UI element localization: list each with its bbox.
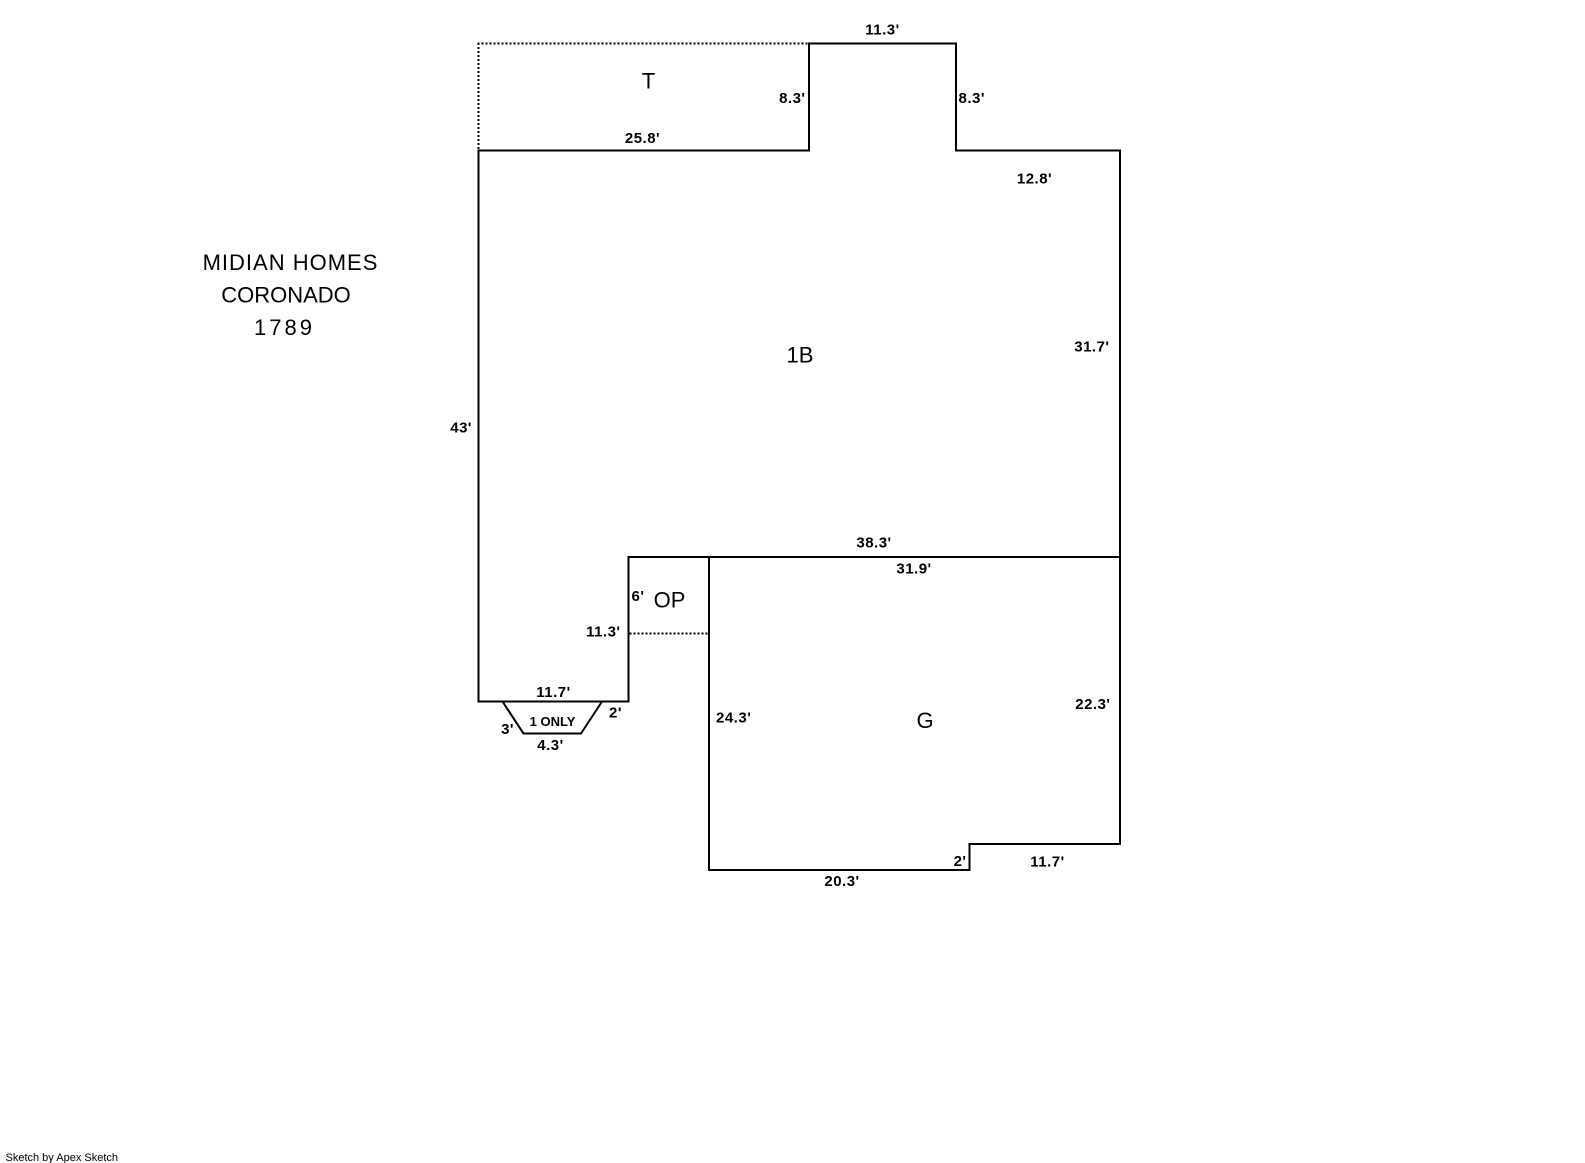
svg-text:3': 3': [501, 721, 514, 738]
svg-text:22.3': 22.3': [1075, 696, 1110, 713]
svg-text:6': 6': [632, 588, 645, 605]
svg-text:12.8': 12.8': [1017, 171, 1052, 188]
svg-text:38.3': 38.3': [856, 535, 891, 552]
svg-text:Sketch by Apex Sketch: Sketch by Apex Sketch: [6, 1152, 119, 1163]
svg-text:8.3': 8.3': [779, 90, 805, 107]
svg-text:1B: 1B: [787, 343, 814, 368]
svg-text:1 ONLY: 1 ONLY: [530, 714, 576, 729]
svg-text:31.9': 31.9': [896, 561, 931, 578]
svg-text:1789: 1789: [254, 315, 315, 340]
svg-text:20.3': 20.3': [824, 873, 859, 890]
svg-text:24.3': 24.3': [716, 710, 751, 727]
svg-text:MIDIAN HOMES: MIDIAN HOMES: [203, 250, 379, 275]
svg-text:11.3': 11.3': [865, 22, 899, 39]
svg-text:OP: OP: [654, 588, 686, 613]
svg-text:11.7': 11.7': [536, 684, 570, 701]
svg-text:8.3': 8.3': [959, 90, 985, 107]
svg-text:11.7': 11.7': [1030, 854, 1064, 871]
svg-text:11.3': 11.3': [586, 624, 620, 641]
svg-text:T: T: [642, 69, 655, 94]
svg-text:4.3': 4.3': [537, 737, 563, 754]
svg-text:CORONADO: CORONADO: [221, 283, 351, 308]
svg-text:31.7': 31.7': [1074, 339, 1109, 356]
svg-text:2': 2': [954, 853, 967, 870]
svg-text:25.8': 25.8': [625, 130, 660, 147]
svg-text:43': 43': [450, 420, 472, 437]
svg-text:2': 2': [609, 705, 622, 722]
svg-text:G: G: [916, 708, 933, 733]
